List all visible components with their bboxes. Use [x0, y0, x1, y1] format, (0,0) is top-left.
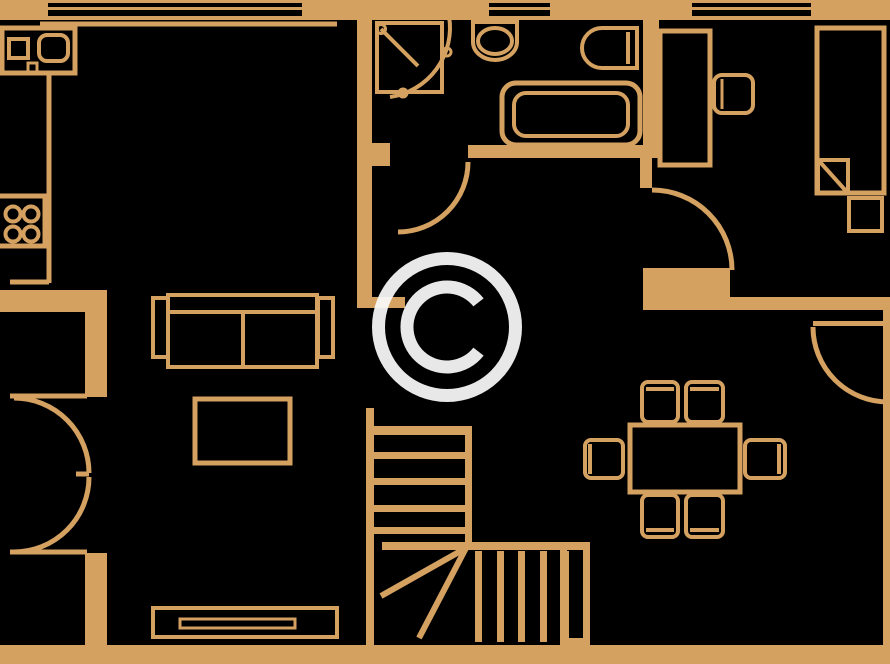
stair-tread-v1	[475, 551, 482, 642]
stair-tread-v5	[562, 551, 569, 642]
door-panel-bottom-right	[813, 321, 885, 326]
toilet-bowl	[478, 28, 512, 54]
shower-door-panel	[381, 29, 418, 66]
copyright-ring	[379, 259, 516, 396]
bedroom-door-arc	[652, 190, 732, 270]
stair-mid-bar	[382, 542, 590, 550]
french-door-arc-bottom	[14, 477, 89, 552]
copyright-c-glyph	[407, 287, 479, 367]
stove-burner-4	[24, 227, 39, 242]
desk-chair	[714, 75, 753, 113]
stair-tread-v2	[497, 551, 504, 642]
dining-table	[630, 425, 740, 492]
window-bedroom-slit-2	[692, 10, 811, 16]
stair-tread-h3	[374, 505, 465, 512]
stair-tread-h1	[374, 452, 465, 459]
window-kitchen-slit-1	[48, 3, 302, 7]
wall-left-block	[0, 290, 107, 312]
stair-right-edge	[465, 426, 472, 548]
bottom-right-door-arc	[813, 327, 888, 402]
bathroom-door-arc	[398, 162, 468, 232]
stair-tread-h4	[374, 527, 465, 534]
wall-shower-stub	[372, 143, 390, 166]
floor-plan-page	[0, 0, 890, 664]
floor-plan-svg	[0, 0, 890, 664]
wall-bedroom-left	[640, 158, 652, 188]
stair-tread-v4	[540, 551, 547, 642]
nightstand	[849, 198, 882, 231]
kitchen-sink-bowl	[39, 35, 68, 61]
desk	[660, 31, 710, 165]
window-kitchen-slit-2	[48, 10, 302, 16]
french-door-arc-top	[14, 398, 89, 473]
wall-kitchen-hall	[357, 18, 372, 308]
tv-screen	[180, 619, 295, 628]
wall-left-low	[85, 553, 107, 645]
stove-burner-3	[6, 227, 21, 242]
bed-fold-diagonal	[820, 162, 846, 191]
bathtub-inner	[514, 93, 628, 136]
sofa-back	[168, 295, 317, 312]
kitchen-sink-tap	[28, 63, 37, 72]
window-bedroom-slit-1	[692, 3, 811, 7]
wall-bedroom-bottom-b	[643, 297, 890, 310]
wall-bath-bedroom	[643, 18, 659, 158]
chimney-inner	[567, 550, 583, 638]
sofa-armrest-right	[318, 298, 333, 357]
stair-top-bar	[374, 426, 472, 435]
wall-left-mid	[85, 312, 107, 397]
stove-burner-2	[24, 207, 39, 222]
stove-burner-1	[6, 207, 21, 222]
sofa-armrest-left	[153, 298, 168, 357]
stair-tread-h2	[374, 478, 465, 485]
wall-bottom	[0, 645, 890, 664]
wall-stairwell-left	[366, 408, 374, 645]
coffee-table	[195, 399, 290, 463]
stair-tread-v3	[518, 551, 525, 642]
kitchen-sink-basin	[9, 39, 28, 58]
window-bathroom-slit-1	[489, 3, 550, 7]
wall-right	[883, 310, 890, 645]
window-bathroom-slit-2	[489, 10, 550, 16]
